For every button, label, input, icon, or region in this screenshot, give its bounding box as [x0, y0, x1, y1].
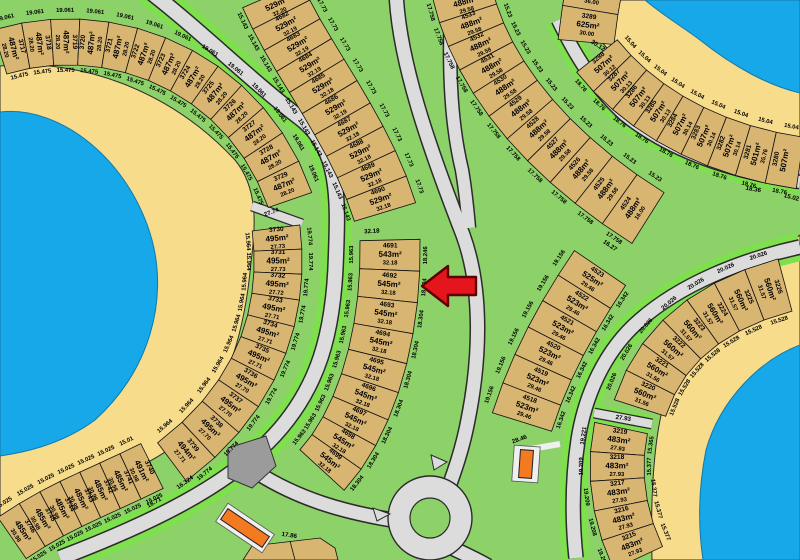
lot-area-label: 483m²	[605, 461, 628, 470]
lot-number-label: 4691	[383, 242, 398, 249]
lot-area-label: 495m²	[267, 256, 290, 265]
roundabout-island	[410, 498, 450, 538]
frontage-label: 18.246	[423, 246, 429, 265]
lot-number-label: 3731	[271, 249, 286, 256]
lot-area-label: 487m²	[61, 30, 70, 54]
frontage-label: 15.475	[57, 68, 76, 74]
frontage-label: 19.061	[56, 8, 75, 14]
frontage-label: 19.209	[579, 457, 585, 476]
utility-lot[interactable]	[512, 445, 540, 483]
lot-area-label: 543m²	[378, 250, 402, 259]
frontage-label: 15.964	[245, 252, 251, 271]
lot-depth-label: 28.20	[54, 35, 60, 51]
frontage-label: 15.377	[647, 457, 653, 476]
stray-dimension-label: 32.18	[364, 227, 380, 235]
frontage-label: 19.774	[307, 252, 313, 271]
lot-depth-label: 27.93	[610, 472, 625, 478]
lot-number-label: 3719	[71, 34, 78, 49]
plat-map: 3717487m²28.2019.06115.4753718487m²28.20…	[0, 0, 800, 560]
lot-depth-label: 32.18	[381, 290, 397, 297]
lot-depth-label: 32.18	[383, 260, 399, 266]
frontage-label: 15.963	[349, 245, 355, 264]
lot-area-label: 545m²	[377, 279, 401, 290]
lot-number-label: 3218	[610, 454, 625, 461]
